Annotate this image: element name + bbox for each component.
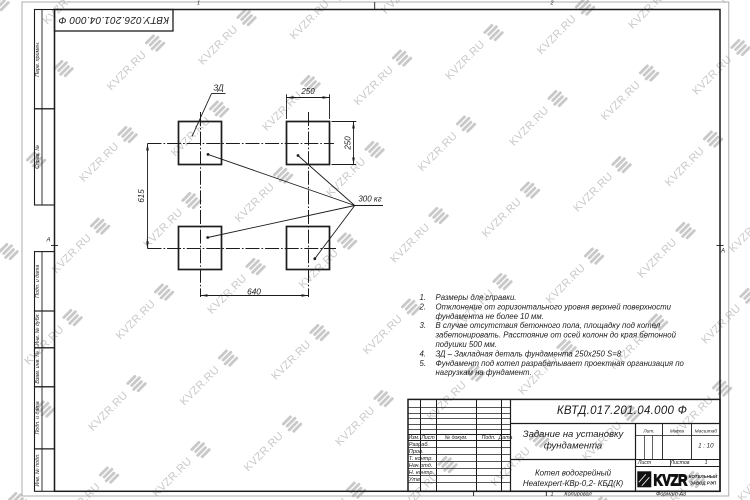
svg-text:KVZR.RU: KVZR.RU: [480, 196, 524, 240]
svg-text:Задание на установку: Задание на установку: [523, 429, 625, 440]
svg-text:3.: 3.: [419, 321, 426, 330]
svg-text:Копировал: Копировал: [564, 491, 591, 497]
svg-text:KVZR.RU: KVZR.RU: [443, 38, 487, 82]
svg-text:KVZR.RU: KVZR.RU: [599, 79, 643, 123]
svg-text:Взам. инв. №: Взам. инв. №: [35, 351, 41, 384]
svg-text:KVZR.RU: KVZR.RU: [242, 430, 286, 474]
svg-text:KVZR.RU: KVZR.RU: [105, 49, 149, 93]
svg-text:KVZR.RU: KVZR.RU: [288, 0, 332, 42]
svg-text:KVZR.RU: KVZR.RU: [333, 404, 377, 448]
svg-text:KVZR.RU: KVZR.RU: [196, 23, 240, 67]
svg-text:KVZR.RU: KVZR.RU: [507, 104, 551, 148]
svg-text:KVZR.RU: KVZR.RU: [86, 389, 130, 433]
svg-text:подушки 500 мм.: подушки 500 мм.: [436, 340, 497, 349]
svg-text:KVZR: KVZR: [654, 472, 688, 490]
svg-text:KVZR.RU: KVZR.RU: [663, 145, 707, 189]
svg-text:Т. контр.: Т. контр.: [409, 456, 433, 462]
svg-text:KVZR.RU: KVZR.RU: [114, 298, 158, 342]
svg-text:KVZR.RU: KVZR.RU: [416, 130, 460, 174]
svg-text:Нач.отд.: Нач.отд.: [409, 463, 433, 469]
svg-text:KVZR.RU: KVZR.RU: [260, 89, 304, 133]
svg-text:KVZR.RU: KVZR.RU: [388, 221, 432, 265]
svg-text:Масса: Масса: [670, 429, 685, 435]
svg-text:Фундамент под котел разрабатыв: Фундамент под котел разрабатывает проект…: [436, 359, 685, 368]
svg-text:1.: 1.: [419, 293, 426, 302]
svg-text:Подп.: Подп.: [482, 435, 496, 441]
svg-text:№ докум.: № докум.: [445, 435, 468, 441]
svg-text:2: 2: [549, 1, 553, 7]
svg-text:KVZR.RU: KVZR.RU: [379, 0, 423, 16]
svg-text:KVZR.RU: KVZR.RU: [635, 236, 679, 280]
svg-text:КВТУ.026.201.04.000 Ф: КВТУ.026.201.04.000 Ф: [58, 14, 169, 25]
svg-text:KVZR.RU: KVZR.RU: [178, 364, 222, 408]
svg-text:615: 615: [137, 189, 146, 203]
svg-text:KVZR.RU: KVZR.RU: [22, 323, 66, 367]
svg-text:Подп. и дата: Подп. и дата: [35, 401, 41, 434]
svg-text:KVZR.RU: KVZR.RU: [150, 455, 194, 499]
svg-text:1: 1: [197, 1, 200, 7]
svg-text:300 кг: 300 кг: [358, 195, 381, 204]
svg-text:1: 1: [705, 460, 708, 466]
svg-text:1 : 10: 1 : 10: [698, 443, 714, 450]
svg-text:Разраб.: Разраб.: [409, 442, 429, 448]
svg-text:забетонировать. Расстояние от: забетонировать. Расстояние от осей колон…: [435, 331, 677, 340]
svg-text:KVZR.RU: KVZR.RU: [727, 211, 750, 255]
svg-text:1: 1: [550, 491, 553, 497]
svg-text:KVZR.RU: KVZR.RU: [571, 170, 615, 214]
svg-text:Инв. № дубл.: Инв. № дубл.: [35, 313, 41, 346]
svg-text:KVZR.RU: KVZR.RU: [425, 379, 469, 423]
svg-text:4.: 4.: [419, 349, 426, 358]
svg-text:ЗАВОД РЭП: ЗАВОД РЭП: [690, 481, 717, 486]
svg-text:KVZR.RU: KVZR.RU: [544, 262, 588, 306]
svg-text:KVZR.RU: KVZR.RU: [269, 338, 313, 382]
svg-text:А: А: [45, 238, 50, 244]
svg-text:Размеры для справки.: Размеры для справки.: [436, 293, 517, 302]
svg-text:Heatexpert-КВр-0,2- КБД(К): Heatexpert-КВр-0,2- КБД(К): [523, 479, 624, 488]
svg-text:KVZR.RU: KVZR.RU: [361, 313, 405, 357]
svg-text:Масштаб: Масштаб: [695, 429, 718, 435]
svg-text:2.: 2.: [418, 302, 426, 311]
svg-text:KVZR.RU: KVZR.RU: [699, 302, 743, 346]
svg-text:Инв. № подл.: Инв. № подл.: [35, 454, 41, 487]
svg-text:KVZR.RU: KVZR.RU: [352, 64, 396, 108]
svg-text:Подп. и дата: Подп. и дата: [35, 265, 41, 298]
svg-text:Перв. примен.: Перв. примен.: [35, 42, 41, 77]
svg-text:KVZR.RU: KVZR.RU: [306, 496, 350, 500]
svg-text:фундамента: фундамента: [544, 441, 602, 452]
svg-text:ЗД – Закладная деталь фундамен: ЗД – Закладная деталь фундамента 250х250…: [436, 349, 624, 358]
svg-text:КОТЕЛЬНЫЙ: КОТЕЛЬНЫЙ: [689, 474, 718, 479]
svg-text:ЗД: ЗД: [213, 84, 224, 93]
svg-text:Н. контр.: Н. контр.: [409, 470, 434, 476]
svg-text:KVZR.RU: KVZR.RU: [626, 0, 670, 31]
svg-text:Отклонение от горизонтального: Отклонение от горизонтального уровня вер…: [436, 302, 672, 311]
svg-text:KVZR.RU: KVZR.RU: [77, 140, 121, 184]
svg-text:KVZR.RU: KVZR.RU: [59, 481, 103, 500]
svg-text:KVZR.RU: KVZR.RU: [132, 0, 176, 1]
svg-text:KVZR.RU: KVZR.RU: [718, 0, 750, 6]
svg-text:Листов: Листов: [670, 460, 690, 466]
svg-text:KVZR.RU: KVZR.RU: [324, 155, 368, 199]
svg-text:фундамента не более 10 мм.: фундамента не более 10 мм.: [436, 312, 544, 321]
svg-text:250: 250: [344, 136, 353, 151]
svg-text:KVZR.RU: KVZR.RU: [50, 232, 94, 276]
svg-text:Лист: Лист: [637, 460, 652, 466]
svg-text:Утв.: Утв.: [408, 477, 422, 483]
svg-text:Изм.: Изм.: [408, 435, 419, 441]
svg-text:KVZR.RU: KVZR.RU: [736, 460, 750, 500]
svg-text:KVZR.RU: KVZR.RU: [690, 53, 734, 97]
svg-text:Пров.: Пров.: [409, 449, 424, 455]
svg-text:KVZR.RU: KVZR.RU: [205, 272, 249, 316]
svg-text:640: 640: [247, 287, 261, 297]
svg-text:KVZR.RU: KVZR.RU: [535, 13, 579, 57]
svg-text:Лист: Лист: [420, 435, 435, 441]
svg-text:5.: 5.: [419, 359, 426, 368]
svg-text:Лит.: Лит.: [642, 429, 654, 435]
svg-text:КВТД.017.201.04.000 Ф: КВТД.017.201.04.000 Ф: [557, 405, 687, 417]
svg-text:Справ. №: Справ. №: [35, 145, 41, 169]
svg-text:В случае отсутствия бетонного: В случае отсутствия бетонного пола, площ…: [436, 321, 661, 330]
svg-text:250: 250: [300, 87, 315, 96]
svg-text:KVZR.RU: KVZR.RU: [233, 181, 277, 225]
svg-text:Формат А3: Формат А3: [656, 491, 687, 497]
svg-text:нагрузкам на фундамент.: нагрузкам на фундамент.: [436, 368, 532, 377]
svg-text:Котел водогрейный: Котел водогрейный: [535, 469, 612, 478]
